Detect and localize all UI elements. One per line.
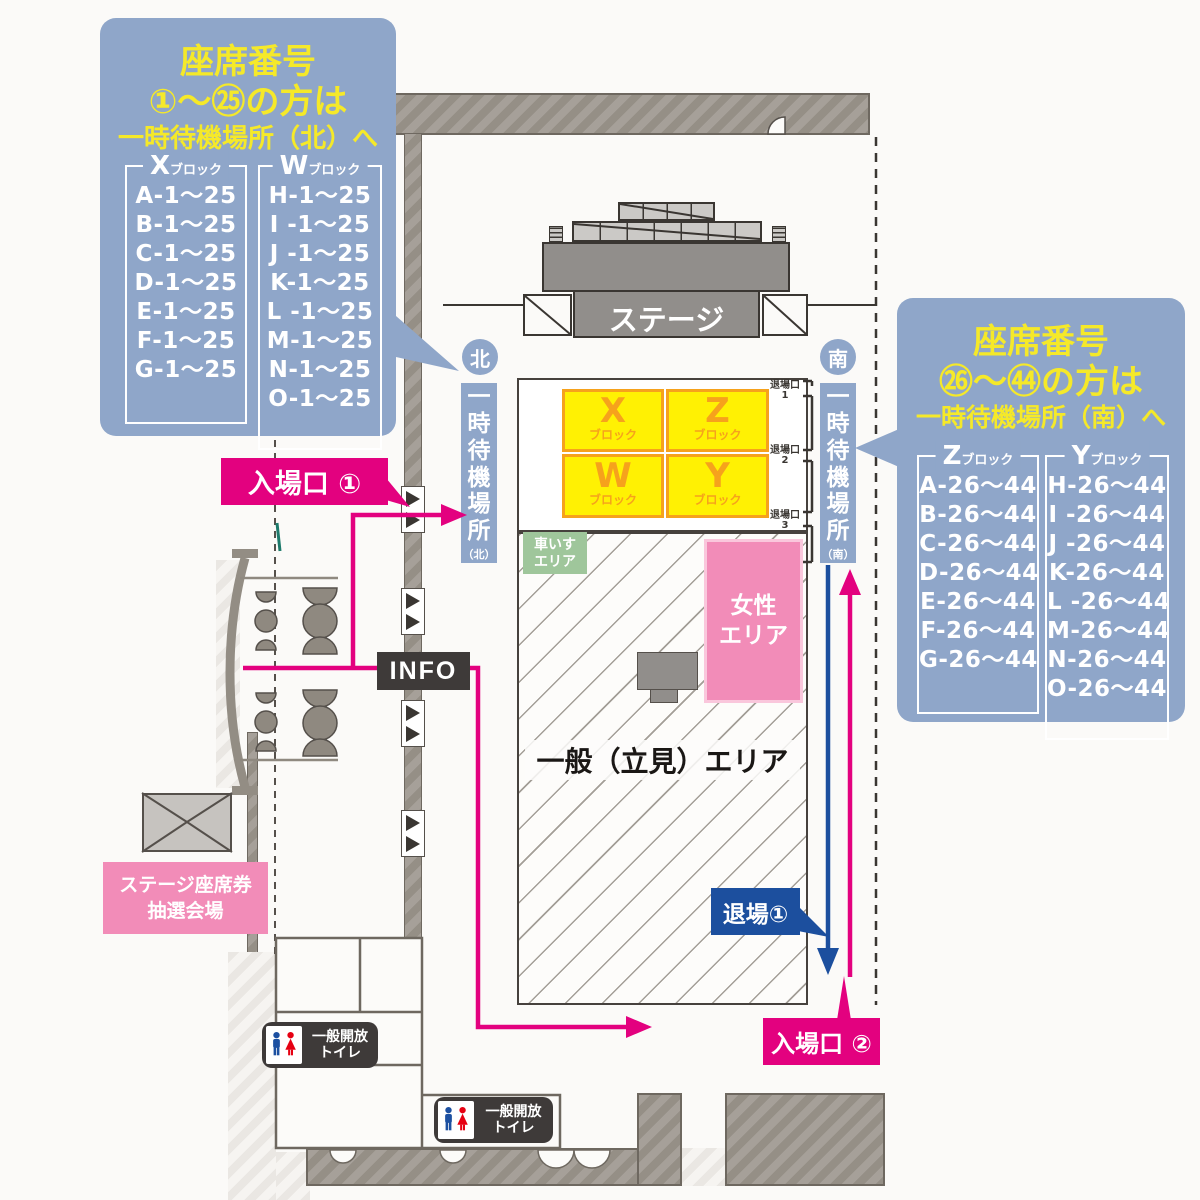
x-block-list: Xブロック A-1〜25B-1〜25C-1〜25D-1〜25E-1〜25F-1〜… <box>125 165 247 424</box>
entrance2-text: 入場口 ② <box>771 1024 872 1059</box>
north-waiting-label: 一時待機場所 <box>466 384 492 545</box>
seat-range-row: G-26〜44 <box>919 646 1037 675</box>
escalator-structure <box>142 793 232 852</box>
bottom-wall-block <box>637 1093 682 1186</box>
seat-range-row: L -26〜44 <box>1047 588 1167 617</box>
exterior-area <box>216 560 240 788</box>
block-letter: W <box>280 151 309 181</box>
bottom-wall-block <box>725 1093 885 1186</box>
seat-range-row: K-26〜44 <box>1047 559 1167 588</box>
seat-block-letter: X <box>565 393 661 429</box>
seat-range-row: N-1〜25 <box>260 356 380 385</box>
exit1-label: 退場① <box>711 888 800 935</box>
seat-range-row: C-26〜44 <box>919 530 1037 559</box>
south-panel-title3: 一時待機場所（南）へ <box>897 398 1185 434</box>
north-info-panel: 座席番号 ①〜㉕の方は 一時待機場所（北）へ Xブロック A-1〜25B-1〜2… <box>100 18 396 436</box>
stage-ladder <box>549 226 563 242</box>
seat-range-row: F-1〜25 <box>127 327 245 356</box>
toilet-line1: 一般開放 <box>302 1029 378 1045</box>
seat-range-row: J -26〜44 <box>1047 530 1167 559</box>
bottom-doorway <box>682 1148 725 1186</box>
entrance2-label-pointer <box>837 976 851 1020</box>
north-badge-label: 北 <box>470 343 490 372</box>
seat-range-row: K-1〜25 <box>260 269 380 298</box>
exit-gate-2: 退場口 2 <box>768 446 802 466</box>
seat-block-suffix: ブロック <box>565 494 661 506</box>
seat-range-row: D-26〜44 <box>919 559 1037 588</box>
wheelchair-area: 車いす エリア <box>523 532 587 574</box>
block-suffix: ブロック <box>961 453 1013 468</box>
seat-block-suffix: ブロック <box>669 429 766 441</box>
north-waiting-sub: （北） <box>463 546 496 562</box>
north-panel-title3: 一時待機場所（北）へ <box>100 118 396 155</box>
wheelchair-area-label: エリア <box>523 554 587 571</box>
bottom-wall <box>306 1148 642 1186</box>
seat-range-row: O-1〜25 <box>260 385 380 414</box>
seat-range-rows: A-1〜25B-1〜25C-1〜25D-1〜25E-1〜25F-1〜25G-1〜… <box>127 182 245 385</box>
seat-range-rows: H-26〜44I -26〜44J -26〜44K-26〜44L -26〜44M-… <box>1047 472 1167 704</box>
exterior-area <box>228 952 276 1200</box>
seat-range-rows: A-26〜44B-26〜44C-26〜44D-26〜44E-26〜44F-26〜… <box>919 472 1037 675</box>
man-woman-icon <box>441 1105 471 1135</box>
women-area-label: 女性 <box>707 591 800 621</box>
seat-block-letter: Y <box>669 458 766 494</box>
seat-range-row: L -1〜25 <box>260 298 380 327</box>
seat-range-row: E-26〜44 <box>919 588 1037 617</box>
wall-stub <box>232 549 258 558</box>
lottery-line2: 抽選会場 <box>103 898 268 924</box>
top-wall <box>392 93 870 135</box>
toilet-sign-south: 一般開放 トイレ <box>434 1097 553 1143</box>
seat-block-letter: Z <box>669 393 766 429</box>
restroom-icons <box>438 1101 474 1139</box>
seat-block-suffix: ブロック <box>669 494 766 506</box>
lottery-line1: ステージ座席券 <box>103 872 268 898</box>
x-block-title: Xブロック <box>143 151 229 181</box>
entrance2-label: 入場口 ② <box>763 1018 880 1065</box>
south-panel-pointer <box>855 429 899 467</box>
z-block-list: Zブロック A-26〜44B-26〜44C-26〜44D-26〜44E-26〜4… <box>917 455 1039 714</box>
entrance1-branch <box>353 515 441 668</box>
south-waiting-label: 一時待機場所 <box>825 384 851 545</box>
stage-ladder <box>772 226 786 242</box>
seat-range-row: I -26〜44 <box>1047 501 1167 530</box>
seat-range-row: H-26〜44 <box>1047 472 1167 501</box>
stage-side-scaffold <box>523 294 572 336</box>
seat-range-row: J -1〜25 <box>260 240 380 269</box>
stage-side-scaffold <box>762 294 808 336</box>
wheelchair-area-label: 車いす <box>523 537 587 554</box>
block-letter: X <box>150 151 170 181</box>
y-block-list: Yブロック H-26〜44I -26〜44J -26〜44K-26〜44L -2… <box>1045 455 1169 740</box>
stage-truss-lower <box>572 221 762 242</box>
w-block-title: Wブロック <box>273 151 368 181</box>
women-area: 女性 エリア <box>704 539 803 703</box>
seat-range-row: D-1〜25 <box>127 269 245 298</box>
restroom-icons <box>266 1026 302 1064</box>
toilet-sign-north: 一般開放 トイレ <box>262 1022 378 1068</box>
seat-range-row: A-26〜44 <box>919 472 1037 501</box>
exit-gate-number: 3 <box>768 521 802 531</box>
door <box>401 700 425 747</box>
door <box>401 486 425 533</box>
standing-area-label: 一般（立見）エリア <box>525 740 800 780</box>
seat-range-row: E-1〜25 <box>127 298 245 327</box>
pillar-symbols <box>255 588 337 756</box>
south-waiting-bar: 一時待機場所 （南） <box>820 383 856 563</box>
seat-range-row: H-1〜25 <box>260 182 380 211</box>
block-suffix: ブロック <box>308 163 360 178</box>
seat-range-row: N-26〜44 <box>1047 646 1167 675</box>
south-waiting-sub: （南） <box>822 546 855 562</box>
man-woman-icon <box>269 1030 299 1060</box>
sound-booth-tab <box>650 690 678 703</box>
south-badge: 南 <box>820 339 856 375</box>
seat-block-letter: W <box>565 458 661 494</box>
toilet-line2: トイレ <box>474 1120 553 1136</box>
seat-range-row: C-1〜25 <box>127 240 245 269</box>
seat-block-Y: Y ブロック <box>666 454 769 518</box>
south-panel-title2: ㉖〜㊹の方は <box>897 354 1185 403</box>
south-info-panel: 座席番号 ㉖〜㊹の方は 一時待機場所（南）へ Zブロック A-26〜44B-26… <box>897 298 1185 722</box>
entrance1-route-arrowhead <box>626 1016 652 1038</box>
seat-range-row: O-26〜44 <box>1047 675 1167 704</box>
seat-range-row: A-1〜25 <box>127 182 245 211</box>
north-panel-title2: ①〜㉕の方は <box>100 74 396 123</box>
block-suffix: ブロック <box>170 163 222 178</box>
seat-block-suffix: ブロック <box>565 429 661 441</box>
south-badge-label: 南 <box>828 343 848 372</box>
exit-route-arrowhead <box>817 948 839 975</box>
left-wall <box>404 133 422 1012</box>
z-block-title: Zブロック <box>936 441 1021 471</box>
exterior-area <box>276 1152 310 1200</box>
exit-gate-3: 退場口 3 <box>768 511 802 531</box>
stair-block <box>378 1016 422 1140</box>
door <box>401 810 425 857</box>
entrance2-route-arrowhead <box>839 569 861 595</box>
seat-range-row: F-26〜44 <box>919 617 1037 646</box>
toilet-line2: トイレ <box>302 1045 378 1061</box>
seat-range-row: G-1〜25 <box>127 356 245 385</box>
women-area-label: エリア <box>707 621 800 651</box>
block-suffix: ブロック <box>1090 453 1142 468</box>
stage-label: ステージ <box>573 297 760 339</box>
stage-truss-upper <box>618 202 715 221</box>
exit-gate-number: 2 <box>768 456 802 466</box>
seat-range-row: B-26〜44 <box>919 501 1037 530</box>
block-letter: Z <box>943 441 962 471</box>
seat-range-row: B-1〜25 <box>127 211 245 240</box>
door <box>401 588 425 635</box>
venue-map: ステージ X ブロック Z ブロック W ブロック Y ブロック 退場口 1 退… <box>0 0 1200 1200</box>
seat-range-row: M-1〜25 <box>260 327 380 356</box>
sound-booth <box>637 652 698 690</box>
y-block-title: Yブロック <box>1065 441 1150 471</box>
seat-range-rows: H-1〜25I -1〜25J -1〜25K-1〜25L -1〜25M-1〜25N… <box>260 182 380 414</box>
toilet-line1: 一般開放 <box>474 1104 553 1120</box>
north-waiting-bar: 一時待機場所 （北） <box>461 383 497 563</box>
seat-block-Z: Z ブロック <box>666 389 769 452</box>
w-block-list: Wブロック H-1〜25I -1〜25J -1〜25K-1〜25L -1〜25M… <box>258 165 382 450</box>
exit1-text: 退場① <box>723 895 788 929</box>
lottery-area-label: ステージ座席券 抽選会場 <box>103 862 268 934</box>
entrance1-label: 入場口 ① <box>221 458 388 505</box>
seat-block-X: X ブロック <box>562 389 664 452</box>
info-counter: INFO <box>377 652 470 690</box>
exit-gate-number: 1 <box>768 391 802 401</box>
block-letter: Y <box>1072 441 1091 471</box>
north-badge: 北 <box>462 339 498 375</box>
seat-range-row: I -1〜25 <box>260 211 380 240</box>
seat-range-row: M-26〜44 <box>1047 617 1167 646</box>
info-text: INFO <box>390 657 458 686</box>
seat-block-W: W ブロック <box>562 454 664 518</box>
stage-back-box <box>542 242 790 292</box>
entrance1-text: 入場口 ① <box>248 462 361 501</box>
exit-gate-1: 退場口 1 <box>768 381 802 401</box>
wall-accent <box>277 523 280 551</box>
